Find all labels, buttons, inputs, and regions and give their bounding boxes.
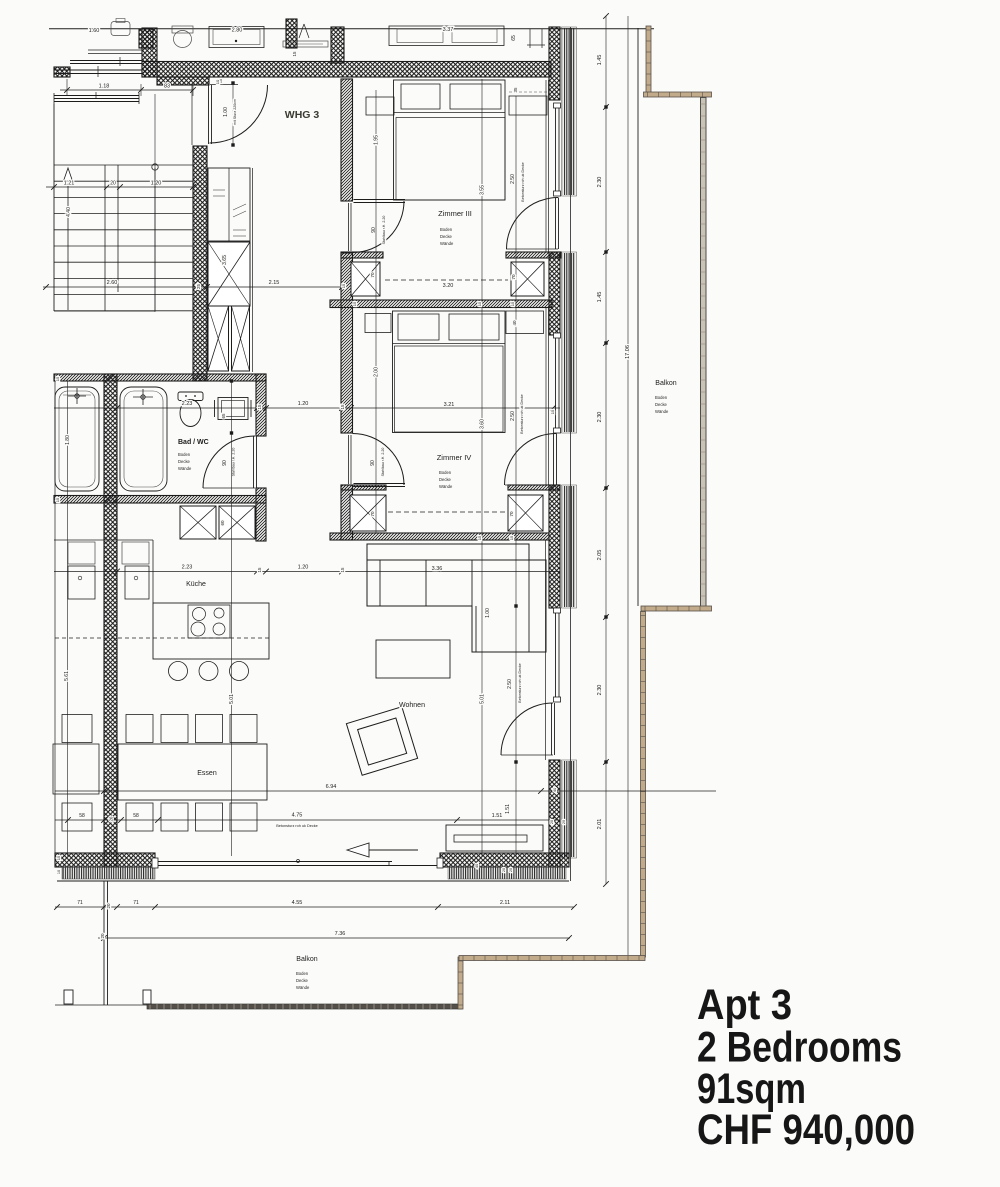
svg-text:Decke: Decke (439, 477, 452, 482)
svg-text:20: 20 (100, 933, 105, 939)
svg-text:Küche: Küche (186, 581, 206, 588)
svg-text:15: 15 (477, 535, 482, 540)
svg-text:40: 40 (512, 320, 517, 326)
svg-text:5.01: 5.01 (229, 694, 235, 704)
svg-text:70: 70 (370, 511, 375, 517)
svg-text:3.36: 3.36 (432, 566, 443, 572)
svg-text:Wohnen: Wohnen (399, 702, 425, 709)
svg-text:65: 65 (221, 413, 226, 419)
svg-text:2.23: 2.23 (182, 401, 193, 407)
svg-text:1.45: 1.45 (597, 292, 603, 303)
svg-text:25: 25 (196, 284, 201, 290)
svg-text:15: 15 (550, 409, 555, 414)
svg-text:83: 83 (164, 84, 170, 90)
svg-text:3.20: 3.20 (443, 283, 454, 289)
svg-text:15: 15 (292, 51, 297, 57)
svg-text:Stahlbau r.H. 2.20: Stahlbau r.H. 2.20 (382, 216, 386, 245)
svg-text:58: 58 (79, 813, 85, 819)
svg-text:26: 26 (109, 816, 114, 822)
svg-text:2.60: 2.60 (107, 280, 118, 286)
svg-text:Wände: Wände (178, 466, 192, 471)
svg-text:5.61: 5.61 (64, 671, 70, 681)
svg-text:Boden: Boden (655, 395, 668, 400)
svg-text:WHG 3: WHG 3 (285, 109, 320, 121)
svg-text:1.20: 1.20 (298, 401, 309, 407)
svg-text:2.50: 2.50 (510, 411, 516, 421)
svg-text:Betonsturz roh uk Decke: Betonsturz roh uk Decke (276, 824, 318, 828)
svg-text:2.30: 2.30 (597, 412, 603, 423)
svg-text:Betonsturz roh uk Decke: Betonsturz roh uk Decke (518, 663, 522, 702)
svg-text:7.36: 7.36 (335, 931, 346, 937)
svg-text:3.65: 3.65 (222, 255, 228, 265)
svg-text:Decke: Decke (655, 402, 668, 407)
svg-text:Apt 3: Apt 3 (697, 981, 792, 1029)
svg-text:40: 40 (552, 787, 557, 792)
svg-text:3.55: 3.55 (480, 185, 486, 195)
svg-text:Wände: Wände (296, 985, 310, 990)
svg-text:Boden: Boden (178, 452, 191, 457)
svg-text:3.60: 3.60 (480, 419, 486, 429)
svg-text:mit Sturz 220cm: mit Sturz 220cm (233, 99, 237, 125)
svg-text:2.23: 2.23 (182, 565, 193, 571)
svg-text:15: 15 (55, 376, 60, 381)
svg-text:Decke: Decke (440, 234, 453, 239)
svg-text:1.20: 1.20 (151, 181, 162, 187)
svg-text:3.37: 3.37 (443, 27, 454, 33)
svg-text:2.30: 2.30 (597, 177, 603, 188)
svg-text:1.18: 1.18 (99, 84, 110, 90)
svg-text:Zimmer III: Zimmer III (438, 209, 472, 218)
svg-text:CHF 940,000: CHF 940,000 (697, 1106, 915, 1154)
svg-text:Essen: Essen (197, 770, 217, 777)
svg-text:2.80: 2.80 (232, 28, 243, 34)
svg-text:Boden: Boden (439, 470, 452, 475)
svg-text:20: 20 (550, 820, 554, 824)
svg-text:10: 10 (215, 79, 220, 84)
svg-text:2.50: 2.50 (507, 679, 513, 689)
svg-text:Wände: Wände (439, 484, 453, 489)
svg-text:1.51: 1.51 (505, 804, 511, 814)
svg-text:17.06: 17.06 (625, 345, 631, 359)
svg-text:35: 35 (513, 87, 518, 93)
svg-text:Bad / WC: Bad / WC (178, 439, 209, 446)
svg-text:Decke: Decke (178, 459, 191, 464)
svg-text:15: 15 (510, 301, 515, 306)
svg-text:65: 65 (511, 35, 517, 41)
svg-text:71: 71 (77, 900, 83, 906)
svg-text:1.51: 1.51 (492, 813, 503, 819)
svg-text:20: 20 (509, 868, 513, 872)
svg-text:90: 90 (370, 460, 376, 466)
svg-text:4.55: 4.55 (292, 900, 303, 906)
svg-text:Stahlbau r.H. 2.20: Stahlbau r.H. 2.20 (381, 448, 385, 477)
svg-text:60: 60 (220, 520, 225, 526)
svg-text:71: 71 (133, 900, 139, 906)
svg-text:15: 15 (257, 404, 262, 410)
svg-text:10: 10 (57, 870, 61, 874)
svg-text:15: 15 (56, 855, 61, 860)
svg-text:Zimmer IV: Zimmer IV (437, 453, 472, 462)
svg-text:15: 15 (340, 404, 345, 410)
svg-text:Balkon: Balkon (655, 380, 677, 387)
svg-text:Betonsturz roh uk Decke: Betonsturz roh uk Decke (520, 394, 524, 433)
svg-text:1.00: 1.00 (223, 107, 229, 117)
svg-text:15: 15 (341, 283, 346, 288)
svg-text:15: 15 (352, 301, 357, 306)
svg-text:6.94: 6.94 (326, 784, 337, 790)
svg-text:2.50: 2.50 (510, 174, 516, 184)
svg-text:70: 70 (511, 274, 516, 280)
svg-text:Boden: Boden (296, 971, 309, 976)
svg-text:Boden: Boden (440, 227, 453, 232)
svg-text:70: 70 (370, 272, 375, 278)
svg-text:15: 15 (340, 567, 345, 573)
svg-text:Wände: Wände (655, 409, 669, 414)
svg-text:Wände: Wände (440, 241, 454, 246)
svg-text:90: 90 (222, 460, 228, 466)
svg-text:2.30: 2.30 (597, 685, 603, 696)
svg-text:15: 15 (257, 567, 262, 573)
svg-text:1.95: 1.95 (374, 135, 380, 145)
svg-text:58: 58 (133, 813, 139, 819)
svg-text:70: 70 (509, 511, 514, 517)
svg-text:20: 20 (106, 903, 111, 909)
svg-text:5.01: 5.01 (480, 694, 486, 704)
svg-text:1.45: 1.45 (597, 55, 603, 66)
svg-text:2.05: 2.05 (597, 550, 603, 561)
svg-text:3.21: 3.21 (444, 402, 455, 408)
svg-text:Betonsturz roh uk Decke: Betonsturz roh uk Decke (521, 162, 525, 201)
svg-text:15: 15 (55, 497, 60, 502)
svg-text:15: 15 (477, 301, 482, 306)
svg-text:2.15: 2.15 (269, 280, 280, 286)
svg-text:2.00: 2.00 (374, 367, 380, 377)
svg-text:15: 15 (509, 535, 514, 540)
svg-text:1.20: 1.20 (298, 565, 309, 571)
svg-text:1.60: 1.60 (89, 28, 100, 34)
svg-text:2.01: 2.01 (597, 819, 603, 830)
svg-text:20: 20 (502, 868, 506, 872)
svg-text:2.11: 2.11 (500, 900, 510, 906)
svg-text:20: 20 (110, 181, 116, 187)
svg-text:4.40: 4.40 (66, 207, 72, 217)
svg-text:Stahlbau r.H. 2.20: Stahlbau r.H. 2.20 (232, 448, 236, 477)
svg-text:Decke: Decke (296, 978, 309, 983)
svg-text:1.00: 1.00 (485, 608, 491, 618)
svg-text:1.80: 1.80 (65, 435, 71, 445)
svg-text:40: 40 (474, 863, 479, 868)
svg-text:4.75: 4.75 (292, 813, 303, 819)
svg-text:20: 20 (562, 820, 566, 824)
svg-text:Balkon: Balkon (296, 956, 318, 963)
svg-text:1.21: 1.21 (64, 181, 75, 187)
